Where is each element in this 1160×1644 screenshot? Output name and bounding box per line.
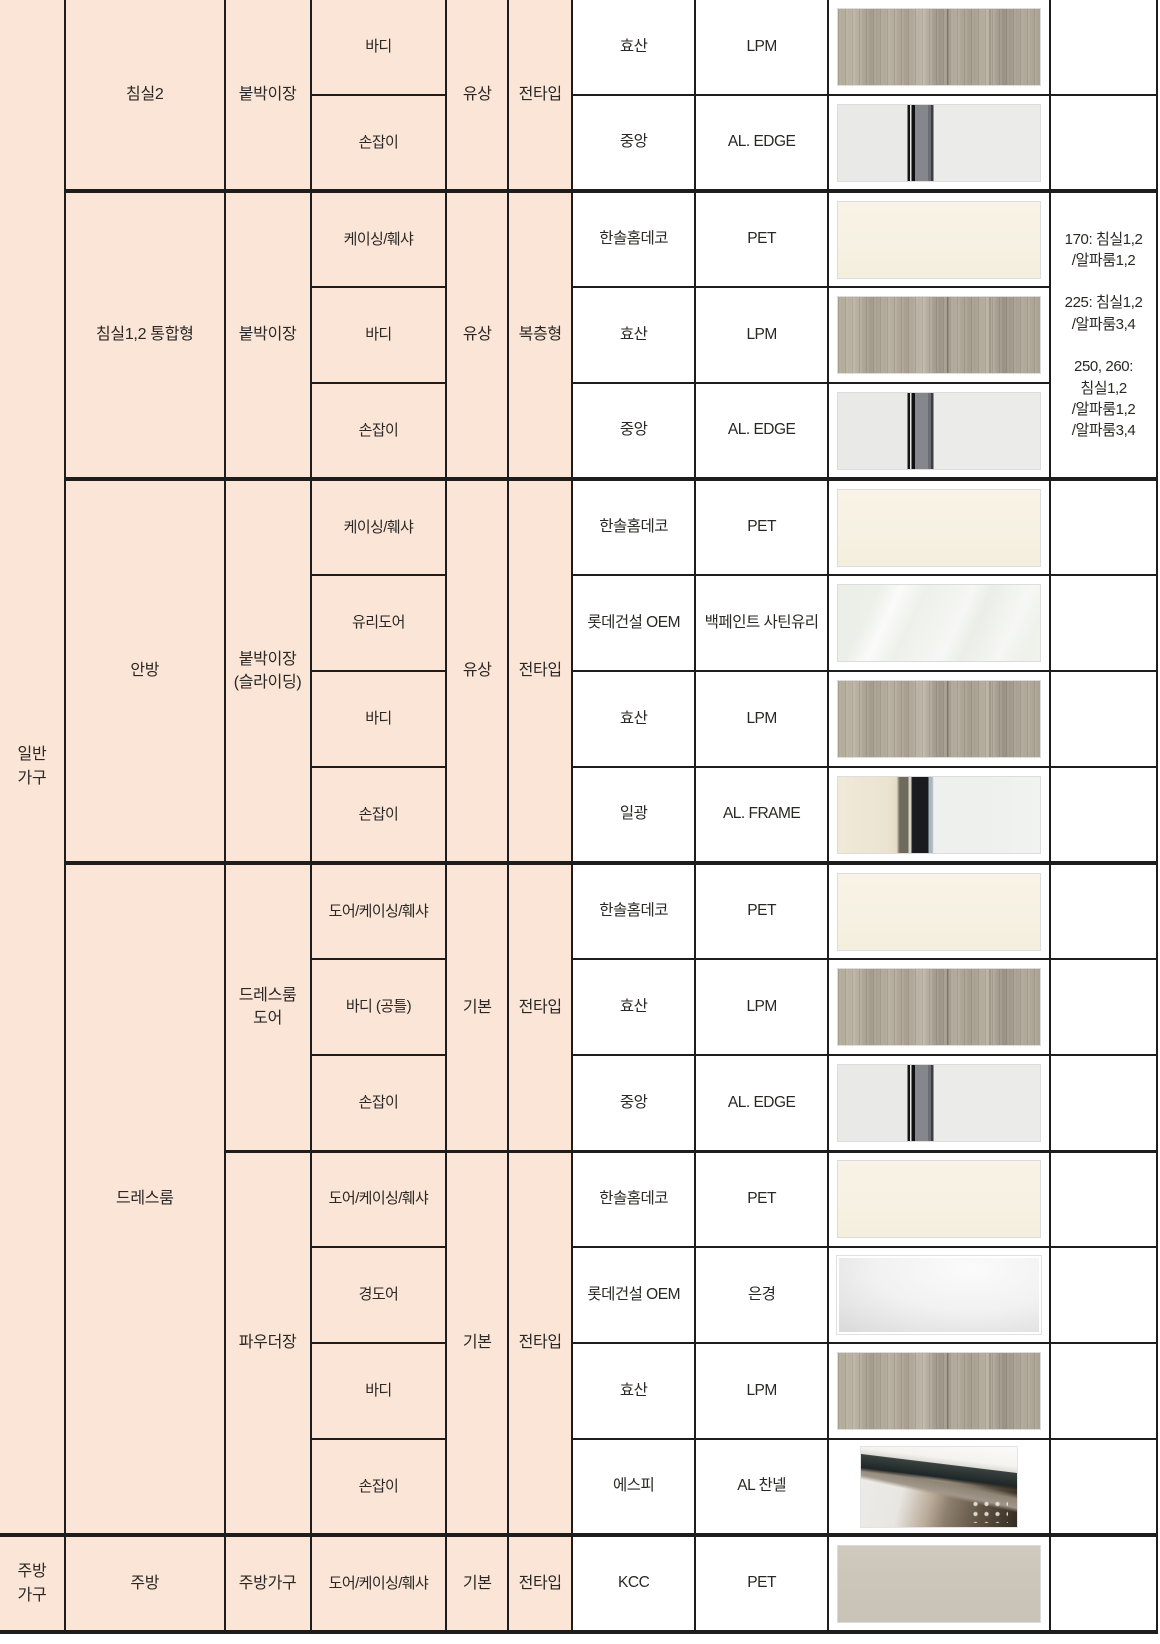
sample-swatch bbox=[837, 489, 1041, 567]
manufacturer-cell: 한솔홈데코 bbox=[572, 1151, 695, 1247]
material-cell: PET bbox=[695, 1151, 828, 1247]
price-type-cell: 기본 bbox=[446, 1151, 508, 1535]
sample-swatch bbox=[837, 776, 1041, 854]
sample-swatch bbox=[837, 1160, 1041, 1238]
part-cell: 바디 bbox=[311, 287, 447, 383]
note-cell bbox=[1050, 95, 1157, 191]
sample-image-cell bbox=[828, 575, 1050, 671]
furniture-cell: 드레스룸 도어 bbox=[225, 863, 311, 1151]
material-cell: LPM bbox=[695, 1343, 828, 1439]
note-cell bbox=[1050, 1439, 1157, 1535]
note-cell bbox=[1050, 479, 1157, 575]
furniture-cell: 붙박이장 bbox=[225, 191, 311, 479]
material-cell: LPM bbox=[695, 959, 828, 1055]
part-cell: 손잡이 bbox=[311, 1055, 447, 1151]
part-cell: 바디 bbox=[311, 0, 447, 95]
sample-swatch bbox=[860, 1446, 1018, 1528]
sample-image-cell bbox=[828, 95, 1050, 191]
part-cell: 손잡이 bbox=[311, 383, 447, 479]
furniture-cell: 주방가구 bbox=[225, 1535, 311, 1632]
manufacturer-cell: 한솔홈데코 bbox=[572, 479, 695, 575]
table-row: 주방 가구 주방 주방가구 도어/케이싱/훼샤 기본 전타입 KCC PET bbox=[0, 1535, 1157, 1632]
sample-image-cell bbox=[828, 1343, 1050, 1439]
sample-swatch bbox=[837, 680, 1041, 758]
material-cell: AL. FRAME bbox=[695, 767, 828, 863]
sample-image-cell bbox=[828, 479, 1050, 575]
manufacturer-cell: 한솔홈데코 bbox=[572, 191, 695, 287]
sample-swatch bbox=[837, 8, 1041, 86]
apply-type-cell: 전타입 bbox=[508, 1535, 572, 1632]
note-cell bbox=[1050, 1055, 1157, 1151]
note-cell bbox=[1050, 1151, 1157, 1247]
material-cell: LPM bbox=[695, 0, 828, 95]
table-row: 안방 붙박이장 (슬라이딩) 케이싱/훼샤 유상 전타입 한솔홈데코 PET bbox=[0, 479, 1157, 575]
price-type-cell: 유상 bbox=[446, 0, 508, 191]
part-cell: 손잡이 bbox=[311, 767, 447, 863]
material-cell: PET bbox=[695, 1535, 828, 1632]
price-type-cell: 기본 bbox=[446, 863, 508, 1151]
sample-image-cell bbox=[828, 1055, 1050, 1151]
part-cell: 손잡이 bbox=[311, 95, 447, 191]
material-cell: AL. EDGE bbox=[695, 383, 828, 479]
note-cell bbox=[1050, 0, 1157, 95]
price-type-cell: 기본 bbox=[446, 1535, 508, 1632]
manufacturer-cell: 중앙 bbox=[572, 1055, 695, 1151]
room-cell: 안방 bbox=[65, 479, 225, 863]
note-cell bbox=[1050, 1343, 1157, 1439]
material-cell: PET bbox=[695, 479, 828, 575]
room-cell: 드레스룸 bbox=[65, 863, 225, 1535]
room-cell: 주방 bbox=[65, 1535, 225, 1632]
note-cell bbox=[1050, 671, 1157, 767]
note-cell bbox=[1050, 863, 1157, 959]
material-cell: AL. EDGE bbox=[695, 95, 828, 191]
category-cell-general: 일반 가구 bbox=[0, 0, 65, 1535]
apply-type-cell: 복층형 bbox=[508, 191, 572, 479]
part-cell: 케이싱/훼샤 bbox=[311, 479, 447, 575]
sample-image-cell bbox=[828, 959, 1050, 1055]
note-cell bbox=[1050, 1535, 1157, 1632]
manufacturer-cell: 중앙 bbox=[572, 95, 695, 191]
table-row: 드레스룸 드레스룸 도어 도어/케이싱/훼샤 기본 전타입 한솔홈데코 PET bbox=[0, 863, 1157, 959]
part-cell: 유리도어 bbox=[311, 575, 447, 671]
material-cell: AL. EDGE bbox=[695, 1055, 828, 1151]
manufacturer-cell: 롯데건설 OEM bbox=[572, 575, 695, 671]
apply-type-cell: 전타입 bbox=[508, 1151, 572, 1535]
room-cell: 침실1,2 통합형 bbox=[65, 191, 225, 479]
sample-image-cell bbox=[828, 1439, 1050, 1535]
part-cell: 도어/케이싱/훼샤 bbox=[311, 1151, 447, 1247]
material-cell: 백페인트 사틴유리 bbox=[695, 575, 828, 671]
material-cell: 은경 bbox=[695, 1247, 828, 1343]
sample-swatch bbox=[837, 1256, 1041, 1334]
manufacturer-cell: 효산 bbox=[572, 1343, 695, 1439]
sample-swatch bbox=[837, 1352, 1041, 1430]
furniture-cell: 붙박이장 bbox=[225, 0, 311, 191]
part-cell: 도어/케이싱/훼샤 bbox=[311, 1535, 447, 1632]
furniture-cell: 붙박이장 (슬라이딩) bbox=[225, 479, 311, 863]
sample-image-cell bbox=[828, 1151, 1050, 1247]
manufacturer-cell: 중앙 bbox=[572, 383, 695, 479]
sample-image-cell bbox=[828, 0, 1050, 95]
sample-image-cell bbox=[828, 671, 1050, 767]
part-cell: 손잡이 bbox=[311, 1439, 447, 1535]
furniture-cell: 파우더장 bbox=[225, 1151, 311, 1535]
sample-swatch bbox=[837, 392, 1041, 470]
sample-image-cell bbox=[828, 1247, 1050, 1343]
manufacturer-cell: 효산 bbox=[572, 959, 695, 1055]
manufacturer-cell: 롯데건설 OEM bbox=[572, 1247, 695, 1343]
apply-type-cell: 전타입 bbox=[508, 0, 572, 191]
price-type-cell: 유상 bbox=[446, 191, 508, 479]
sample-image-cell bbox=[828, 191, 1050, 287]
room-cell: 침실2 bbox=[65, 0, 225, 191]
part-cell: 바디 (공틀) bbox=[311, 959, 447, 1055]
sample-swatch bbox=[837, 1064, 1041, 1142]
note-cell bbox=[1050, 575, 1157, 671]
note-cell bbox=[1050, 959, 1157, 1055]
material-cell: PET bbox=[695, 863, 828, 959]
material-cell: LPM bbox=[695, 287, 828, 383]
material-cell: AL 찬넬 bbox=[695, 1439, 828, 1535]
sample-image-cell bbox=[828, 287, 1050, 383]
price-type-cell: 유상 bbox=[446, 479, 508, 863]
note-cell bbox=[1050, 767, 1157, 863]
sample-swatch bbox=[837, 296, 1041, 374]
table-row: 침실1,2 통합형 붙박이장 케이싱/훼샤 유상 복층형 한솔홈데코 PET 1… bbox=[0, 191, 1157, 287]
sample-swatch bbox=[837, 873, 1041, 951]
spec-table: 일반 가구 침실2 붙박이장 바디 유상 전타입 효산 LPM 손잡이 중앙 A… bbox=[0, 0, 1158, 1634]
manufacturer-cell: 에스피 bbox=[572, 1439, 695, 1535]
finish-spec-sheet: 일반 가구 침실2 붙박이장 바디 유상 전타입 효산 LPM 손잡이 중앙 A… bbox=[0, 0, 1160, 1644]
material-cell: LPM bbox=[695, 671, 828, 767]
note-cell bbox=[1050, 1247, 1157, 1343]
sample-swatch bbox=[837, 104, 1041, 182]
material-cell: PET bbox=[695, 191, 828, 287]
sample-image-cell bbox=[828, 863, 1050, 959]
note-cell: 170: 침실1,2 /알파룸1,2 225: 침실1,2 /알파룸3,4 25… bbox=[1050, 191, 1157, 479]
manufacturer-cell: 효산 bbox=[572, 671, 695, 767]
part-cell: 케이싱/훼샤 bbox=[311, 191, 447, 287]
manufacturer-cell: 효산 bbox=[572, 0, 695, 95]
sample-swatch bbox=[837, 201, 1041, 279]
category-cell-kitchen: 주방 가구 bbox=[0, 1535, 65, 1632]
sample-swatch bbox=[837, 584, 1041, 662]
manufacturer-cell: 한솔홈데코 bbox=[572, 863, 695, 959]
sample-image-cell bbox=[828, 383, 1050, 479]
manufacturer-cell: KCC bbox=[572, 1535, 695, 1632]
part-cell: 도어/케이싱/훼샤 bbox=[311, 863, 447, 959]
part-cell: 경도어 bbox=[311, 1247, 447, 1343]
apply-type-cell: 전타입 bbox=[508, 863, 572, 1151]
apply-type-cell: 전타입 bbox=[508, 479, 572, 863]
table-row: 일반 가구 침실2 붙박이장 바디 유상 전타입 효산 LPM bbox=[0, 0, 1157, 95]
sample-swatch bbox=[837, 1545, 1041, 1623]
sample-image-cell bbox=[828, 767, 1050, 863]
sample-swatch bbox=[837, 968, 1041, 1046]
part-cell: 바디 bbox=[311, 671, 447, 767]
manufacturer-cell: 일광 bbox=[572, 767, 695, 863]
manufacturer-cell: 효산 bbox=[572, 287, 695, 383]
sample-image-cell bbox=[828, 1535, 1050, 1632]
part-cell: 바디 bbox=[311, 1343, 447, 1439]
